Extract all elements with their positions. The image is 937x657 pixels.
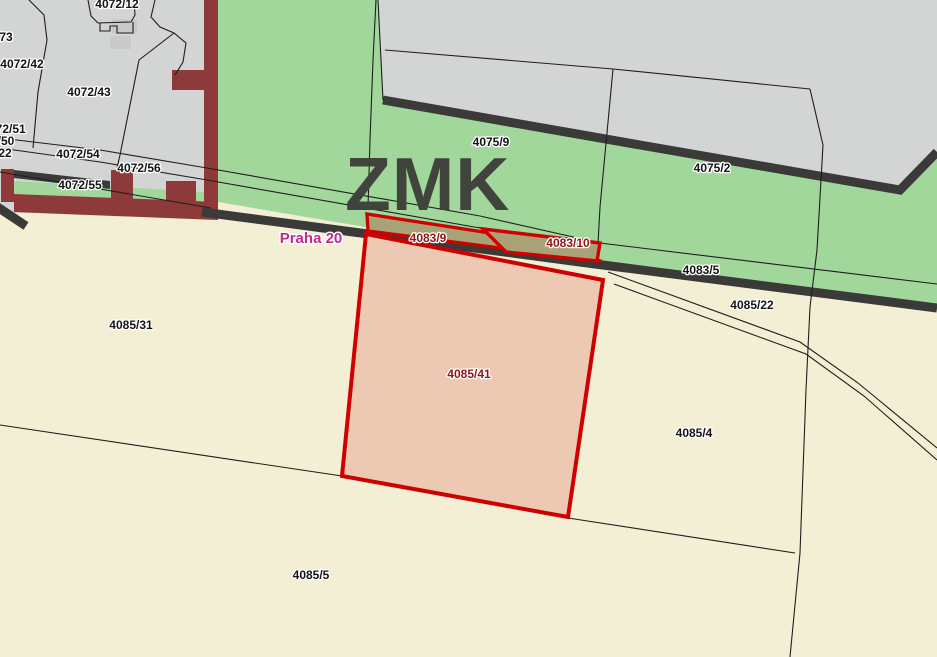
parcel-label-4072-43: 4072/43: [67, 85, 111, 99]
parcel-label-73: 73: [0, 30, 13, 44]
map-canvas[interactable]: ZMK Praha 20 4072/12 73 4072/42 4072/43 …: [0, 0, 937, 657]
parcel-label-22: 22: [0, 146, 12, 160]
parcel-label-4083-10: 4083/10: [546, 236, 590, 250]
parcel-label-4085-41: 4085/41: [447, 367, 491, 381]
parcel-label-4085-22: 4085/22: [730, 298, 774, 312]
maroon-wall-stub: [166, 181, 196, 203]
parcel-label-4072-42: 4072/42: [0, 57, 44, 71]
parcel-label-4072-55: 4072/55: [58, 178, 102, 192]
parcel-label-4075-9: 4075/9: [473, 135, 510, 149]
parcel-label-4085-4: 4085/4: [676, 426, 713, 440]
parcel-label-4072-54: 4072/54: [56, 147, 100, 161]
building-footprint: [110, 36, 131, 49]
municipality-label-praha20: Praha 20: [280, 230, 343, 247]
zone-label-zmk: ZMK: [345, 142, 510, 226]
parcel-label-4085-5: 4085/5: [293, 568, 330, 582]
parcel-label-4075-2: 4075/2: [694, 161, 731, 175]
parcel-label-4083-5: 4083/5: [683, 263, 720, 277]
parcel-label-4072-56: 4072/56: [117, 161, 161, 175]
parcel-label-4085-31: 4085/31: [109, 318, 153, 332]
parcel-label-4083-9: 4083/9: [410, 231, 447, 245]
parcel-label-4072-12: 4072/12: [95, 0, 139, 11]
maroon-wall-east: [204, 0, 218, 218]
